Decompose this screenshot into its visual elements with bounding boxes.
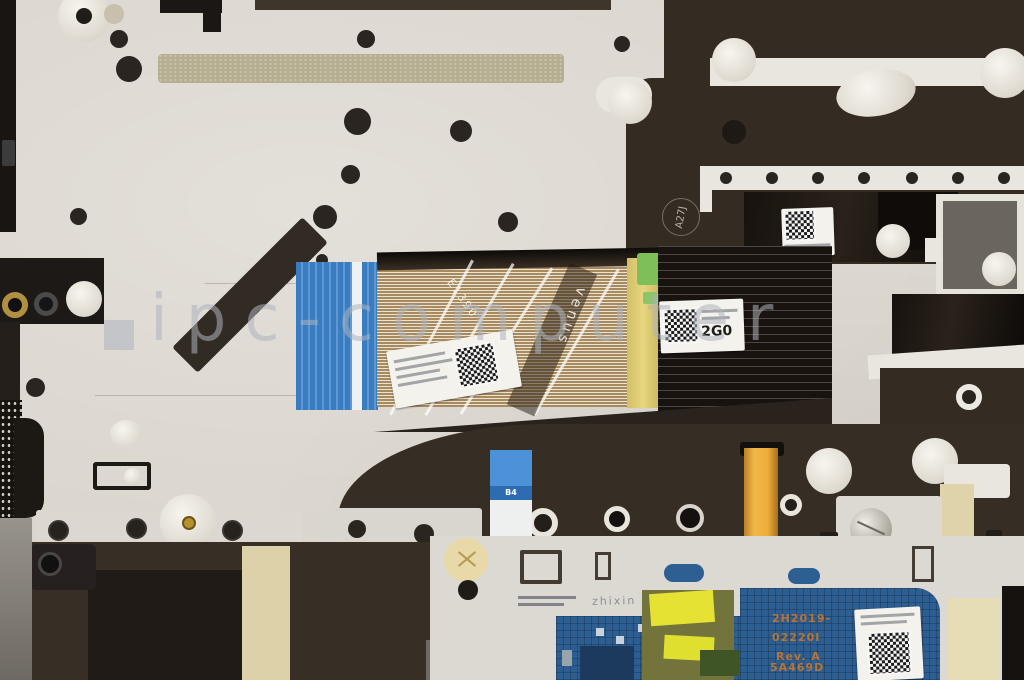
speaker-box (88, 570, 242, 680)
screw-ring (956, 384, 982, 410)
rivet-dot (26, 378, 45, 397)
rail-hole (998, 172, 1010, 184)
screw-hole (76, 8, 92, 24)
rail-hole (906, 172, 918, 184)
rivet-dot (614, 36, 630, 52)
standoff-hole (38, 552, 62, 576)
ffc-blue-stiffener (490, 450, 532, 486)
screw-ring (676, 504, 704, 532)
rivet-dot (357, 30, 375, 48)
plate-slot (595, 552, 611, 580)
rail-hole (766, 172, 778, 184)
watermark-square (104, 320, 134, 350)
plate-hole (722, 120, 746, 144)
plate-stamp-text: A27J (674, 205, 689, 229)
rivet-dot (450, 120, 472, 142)
jack-ring (34, 292, 58, 316)
gold-screw-center (182, 516, 196, 530)
blue-slot (788, 568, 820, 584)
touchpad-code-line: 02220I (772, 631, 820, 644)
bolt (222, 520, 243, 541)
bolt (48, 520, 69, 541)
pcb-capacitor (562, 650, 572, 666)
label-microtext (861, 620, 907, 625)
plate-microtext (518, 603, 564, 606)
adhesive-circle (806, 448, 852, 494)
qr-code (868, 632, 910, 674)
photo-laptop-palmrest-assembly: A27J venus E1390 2G0 (0, 0, 1024, 680)
rail-hole (812, 172, 824, 184)
plate-stamp-ring: A27J (662, 198, 700, 236)
screw-ring (528, 508, 558, 538)
pcb-pad (596, 628, 604, 636)
left-column-part (0, 322, 20, 408)
plate-microtext (518, 596, 576, 599)
screw-ring (604, 506, 630, 532)
rail-hole (952, 172, 964, 184)
qr-code (785, 211, 814, 240)
bolt (126, 518, 147, 539)
touchpad-label (854, 606, 924, 680)
blue-slot (664, 564, 704, 582)
touchpad-code-line: 5A469D (770, 661, 824, 674)
tape-strip-vertical (242, 546, 290, 680)
chassis-left-edge (0, 0, 16, 232)
bracket-edge (203, 0, 221, 32)
label-microtext (860, 613, 914, 619)
rivet-dot (70, 208, 87, 225)
adhesive-dot (104, 4, 124, 24)
keyboard-plate-dark (880, 368, 1024, 430)
rivet-dot (348, 520, 366, 538)
screw-boss (982, 252, 1016, 286)
kapton-patch (649, 590, 715, 626)
top-edge-strip (255, 0, 611, 10)
screw-boss (876, 224, 910, 258)
touchpad-code-line: 2H2019- (772, 612, 831, 625)
rivet-dot (313, 205, 337, 229)
latch-screw (124, 468, 141, 485)
rivet-dot (344, 108, 371, 135)
dark-right-edge (1002, 586, 1024, 680)
plate-slot (912, 546, 934, 582)
rail-hole (720, 172, 732, 184)
screw-boss (608, 80, 652, 124)
speaker-housing (14, 418, 44, 518)
ffc-stiffener-tag: B4 (490, 486, 532, 500)
background-table-edge (0, 518, 32, 680)
rivet-dot (498, 212, 518, 232)
mount-bump (712, 38, 756, 82)
rivet-dot (116, 56, 142, 82)
plate-slot (520, 550, 562, 584)
plate-hole (458, 580, 478, 600)
tape-strip-vertical (948, 598, 1000, 680)
step-tab (925, 238, 941, 262)
adhesive-blob (110, 420, 142, 447)
screw-ring (780, 494, 802, 516)
pcb-pad (616, 636, 624, 644)
rivet-dot (341, 165, 360, 184)
rivet-dot (110, 30, 128, 48)
mount-bump (980, 48, 1024, 98)
rail-hole (858, 172, 870, 184)
edge-connector (2, 140, 15, 166)
pcb-chip (580, 646, 634, 680)
watermark-text: ipc-computer (150, 282, 791, 356)
jack-barrel (2, 292, 28, 318)
latch-slot (93, 462, 151, 490)
screw-boss (66, 281, 102, 317)
fabric-tape-strip (158, 54, 564, 83)
